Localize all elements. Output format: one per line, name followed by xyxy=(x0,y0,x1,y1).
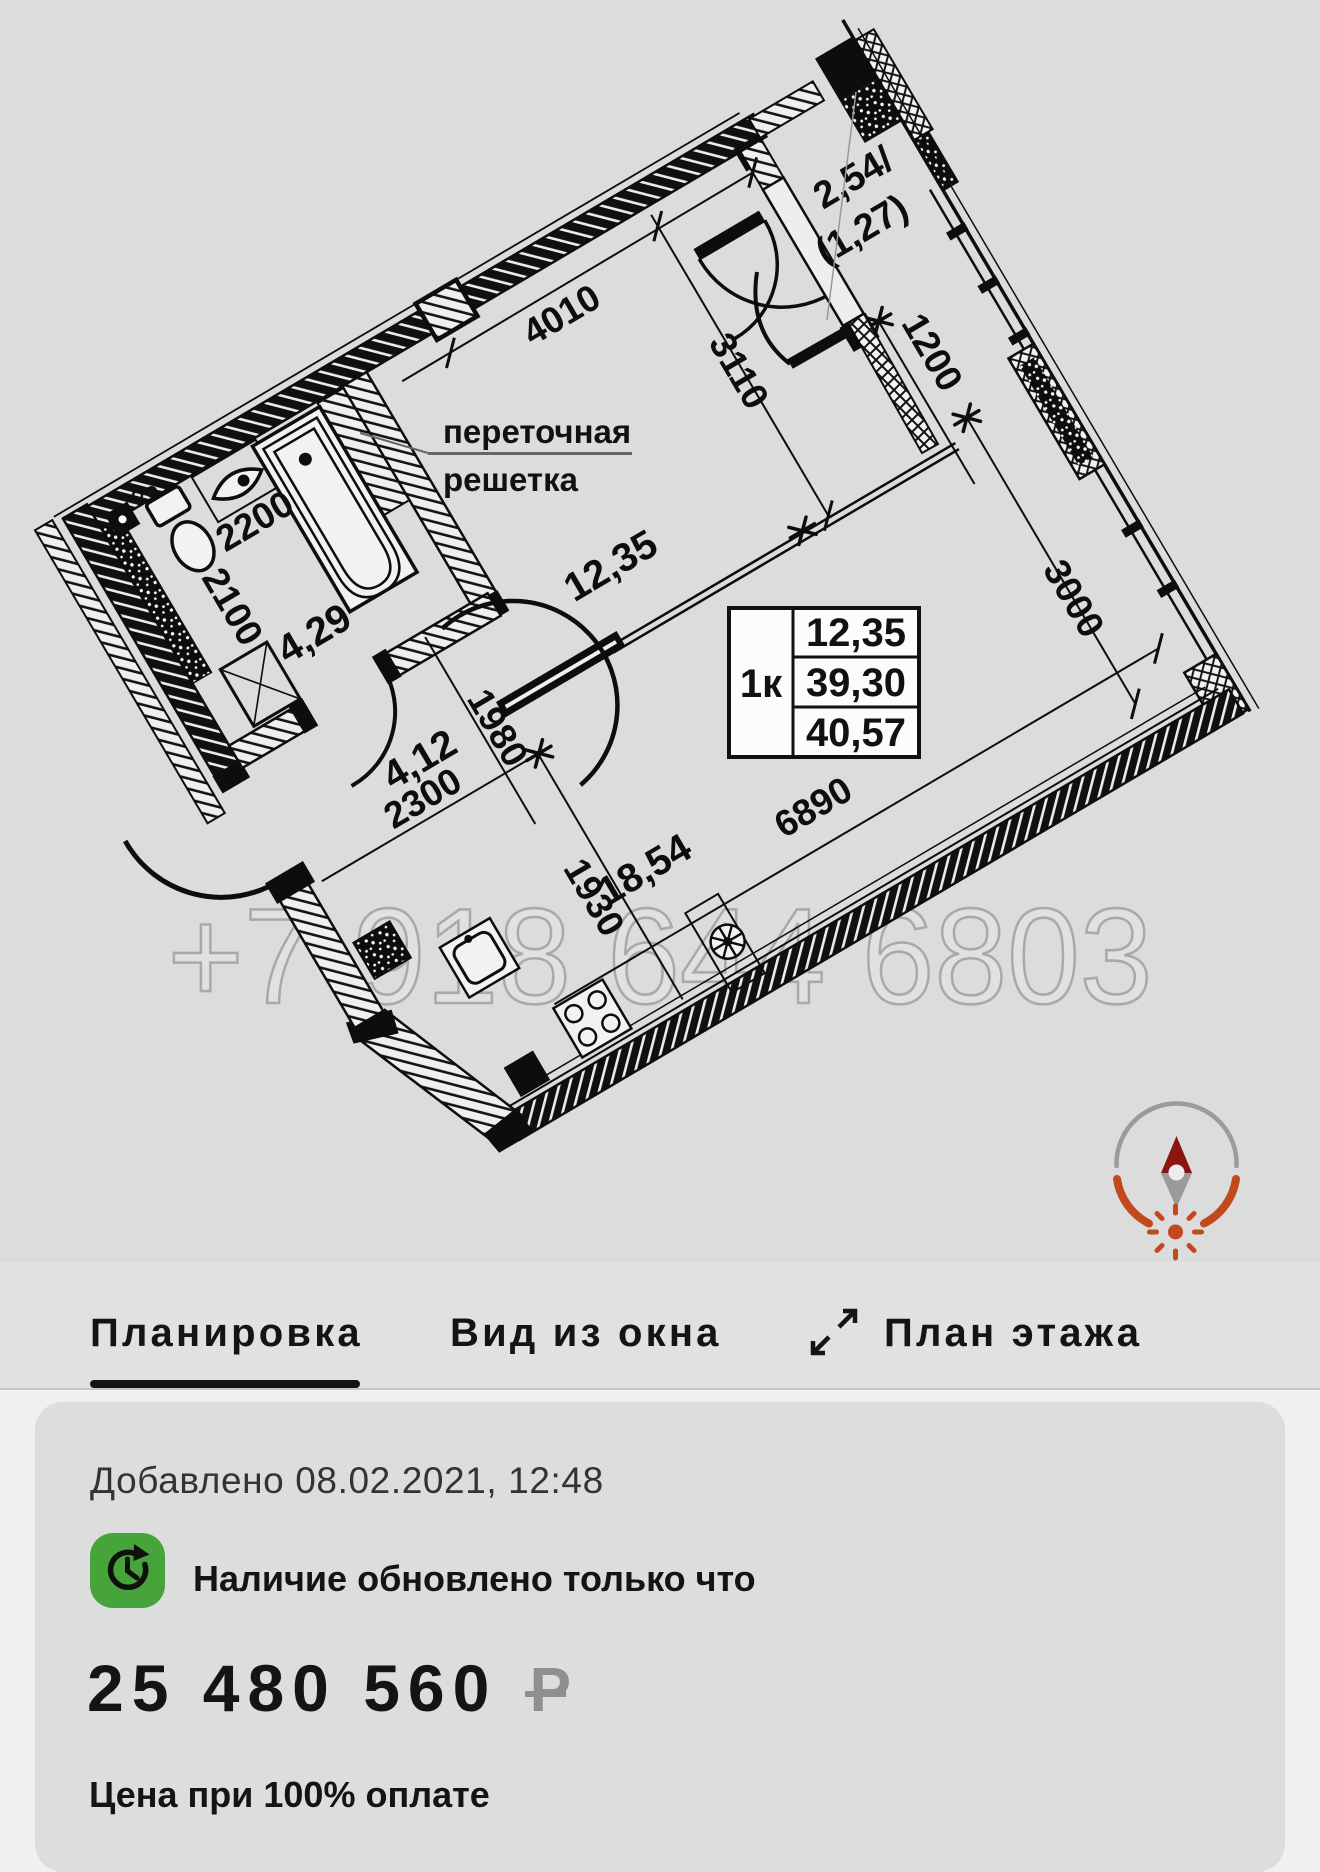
svg-text:4010: 4010 xyxy=(516,276,608,353)
svg-text:переточная: переточная xyxy=(443,413,631,450)
svg-text:1200: 1200 xyxy=(894,306,971,398)
svg-text:2100: 2100 xyxy=(194,561,271,653)
svg-text:39,30: 39,30 xyxy=(806,661,906,705)
svg-text:решетка: решетка xyxy=(443,461,579,498)
svg-text:40,57: 40,57 xyxy=(806,711,906,755)
svg-text:6890: 6890 xyxy=(767,769,859,846)
svg-text:12,35: 12,35 xyxy=(806,611,906,655)
svg-text:12,35: 12,35 xyxy=(556,522,665,611)
svg-text:3000: 3000 xyxy=(1035,553,1112,645)
svg-text:1к: 1к xyxy=(740,662,783,706)
